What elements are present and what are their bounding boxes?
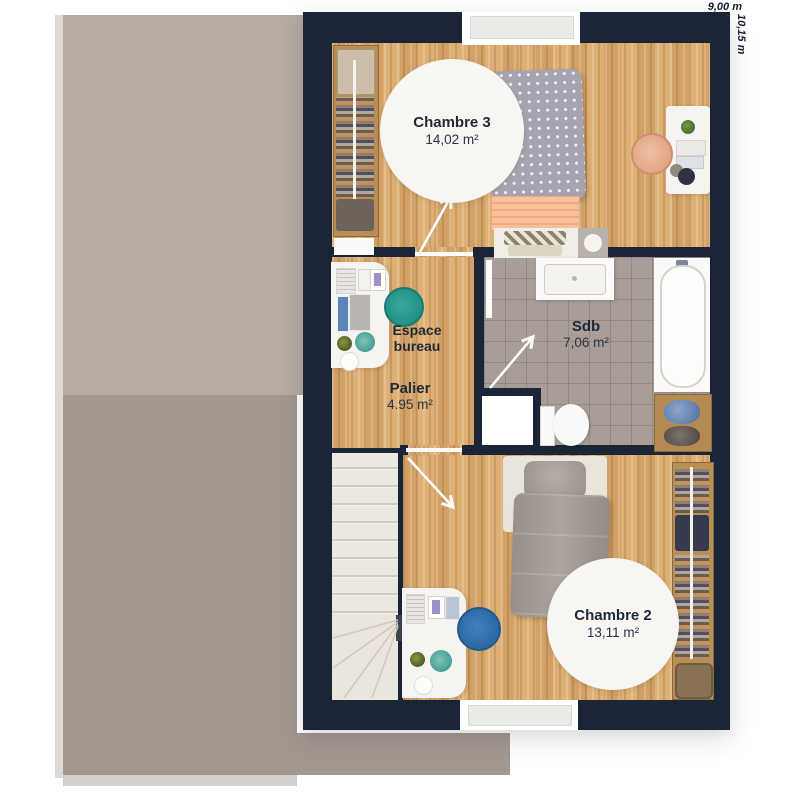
door-leaf-chambre2 bbox=[406, 448, 462, 452]
room-area: 7,06 m² bbox=[536, 335, 636, 351]
basin-drain bbox=[572, 276, 577, 281]
desk-object bbox=[678, 168, 695, 185]
nightstand bbox=[578, 228, 608, 258]
closet-wall-top bbox=[474, 388, 541, 396]
room-name: Chambre 3 bbox=[413, 114, 491, 131]
towels-dark bbox=[664, 426, 700, 446]
papers bbox=[336, 268, 356, 294]
wardrobe-chambre2 bbox=[672, 462, 714, 700]
plant bbox=[355, 332, 375, 352]
roof-section-below-plan bbox=[297, 733, 510, 775]
bed-pillow bbox=[508, 245, 562, 256]
room-name: Chambre 2 bbox=[574, 607, 652, 624]
notepad bbox=[445, 596, 460, 620]
room-area: 13,11 m² bbox=[587, 625, 639, 641]
chair-espace-bureau bbox=[384, 287, 424, 327]
room-label-chambre3: Chambre 3 14,02 m² bbox=[380, 59, 524, 203]
cup bbox=[340, 352, 359, 371]
towels-blue bbox=[664, 400, 700, 424]
doorway-cabinet-chambre3 bbox=[334, 238, 374, 255]
room-area: 4.95 m² bbox=[365, 397, 455, 413]
notebook-purple bbox=[428, 596, 445, 619]
lamp bbox=[584, 234, 602, 252]
cup bbox=[414, 676, 433, 695]
room-name: Espace bureau bbox=[388, 322, 446, 354]
roof-section-lower bbox=[63, 395, 297, 775]
basket bbox=[675, 663, 713, 699]
dimension-width: 9,00 m bbox=[660, 1, 742, 13]
towel-shelf bbox=[654, 394, 712, 452]
bathtub bbox=[654, 258, 710, 392]
stairwell-edge bbox=[332, 448, 400, 453]
roof-section-upper bbox=[63, 15, 303, 395]
staircase bbox=[332, 452, 398, 700]
room-label-chambre2: Chambre 2 13,11 m² bbox=[547, 558, 679, 690]
papers bbox=[676, 140, 706, 156]
storage-box bbox=[337, 49, 375, 95]
room-label-sdb: Sdb 7,06 m² bbox=[536, 318, 636, 351]
chair-chambre2 bbox=[457, 607, 501, 651]
wardrobe-drawer bbox=[336, 199, 374, 231]
plant bbox=[430, 650, 452, 672]
window-pane bbox=[470, 16, 574, 39]
room-name: Palier bbox=[365, 380, 455, 397]
plant bbox=[681, 120, 695, 134]
notebook-purple bbox=[370, 269, 386, 291]
bed-pillow bbox=[504, 231, 566, 245]
door-leaf-bathroom bbox=[486, 260, 492, 318]
door-leaf-chambre3 bbox=[415, 252, 473, 256]
wardrobe-chambre3 bbox=[333, 45, 379, 237]
window-chambre3 bbox=[462, 12, 580, 45]
roof-edge-bottom bbox=[63, 775, 297, 786]
wardrobe-rail bbox=[690, 467, 693, 659]
tablet bbox=[337, 296, 349, 332]
notepad bbox=[349, 294, 371, 331]
washbasin bbox=[536, 258, 614, 300]
chair-chambre3 bbox=[631, 133, 673, 175]
window-chambre2 bbox=[460, 700, 578, 730]
window-pane bbox=[468, 705, 572, 726]
room-name: Sdb bbox=[536, 318, 636, 335]
toilet-bowl bbox=[553, 404, 589, 446]
desk-espace-bureau bbox=[331, 262, 389, 368]
tub-basin bbox=[660, 265, 706, 388]
wall-bathroom-west bbox=[474, 247, 484, 396]
room-area: 14,02 m² bbox=[425, 132, 478, 148]
stair-treads bbox=[332, 452, 398, 614]
room-label-palier: Palier 4.95 m² bbox=[365, 380, 455, 413]
papers bbox=[406, 594, 425, 624]
plant bbox=[410, 652, 425, 667]
floor-plan-canvas: Chambre 3 14,02 m² Chambre 2 13,11 m² Sd… bbox=[0, 0, 800, 800]
wardrobe-rail bbox=[353, 60, 356, 202]
dimension-height: 10,15 m bbox=[731, 14, 747, 84]
plant bbox=[337, 336, 352, 351]
roof-edge-left bbox=[55, 15, 63, 778]
room-label-espace-bureau: Espace bureau bbox=[388, 322, 446, 354]
bed-chambre3-blanket bbox=[492, 196, 579, 230]
desk-chambre2 bbox=[402, 588, 466, 698]
closet-floor bbox=[482, 396, 533, 447]
